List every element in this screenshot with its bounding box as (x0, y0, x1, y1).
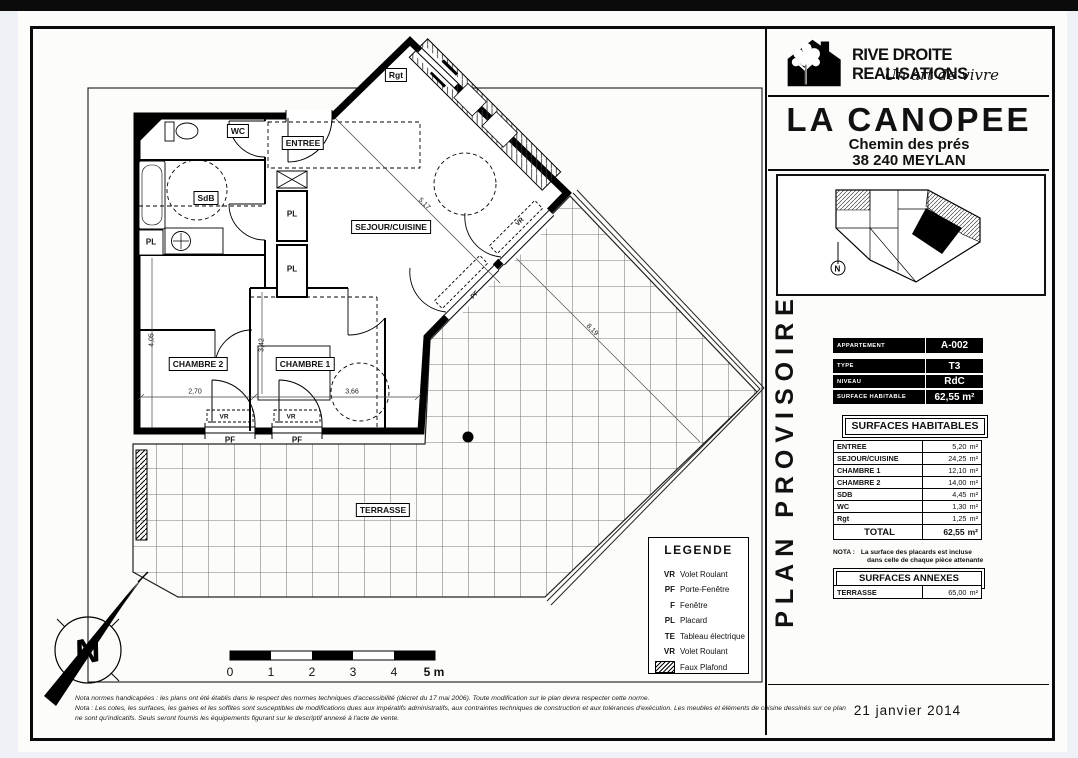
surface-total-row: TOTAL 62,55m² (833, 524, 982, 540)
surface-row: TERRASSE 65,00m² (833, 585, 982, 599)
divider-line (768, 95, 1049, 97)
room-label-wc: WC (227, 124, 249, 138)
legend-code: VR (649, 570, 675, 579)
surface-unit: m² (969, 588, 978, 597)
legend-code: PL (649, 616, 675, 625)
scale-tick-label: 1 (268, 665, 275, 679)
legend-label: Volet Roulant (680, 570, 728, 579)
room-label-entree: ENTREE (282, 136, 324, 150)
legend-code: F (649, 601, 675, 610)
info-value: A-002 (926, 340, 983, 351)
footnote: Nota normes handicapées : les plans ont … (75, 694, 775, 704)
legend-label: Tableau électrique (680, 632, 745, 641)
scale-tick-label: 4 (391, 665, 398, 679)
planter-strip (136, 450, 147, 540)
legend-box: LEGENDE VR Volet Roulant PF Porte-Fenêtr… (648, 537, 749, 674)
info-label: NIVEAU (833, 375, 926, 388)
dim-label: 2,70 (188, 389, 202, 396)
legend-item: VR Volet Roulant (649, 567, 748, 582)
surface-unit: m² (969, 454, 978, 463)
scale-tick-label: 0 (227, 665, 234, 679)
nota-label: NOTA : (833, 549, 855, 556)
hatch-swatch (655, 661, 675, 673)
room-label-rgt: Rgt (385, 68, 407, 82)
scale-tick-label: 5 m (424, 665, 445, 679)
closet-label: PL (287, 210, 297, 219)
info-label: SURFACE HABITABLE (833, 390, 926, 404)
legend-code: PF (649, 585, 675, 594)
legend-label: Fenêtre (680, 601, 708, 610)
surface-label: CHAMBRE 2 (834, 478, 922, 487)
surface-value: 4,45 (952, 490, 966, 499)
closet-label: PL (146, 238, 156, 247)
surface-value: 12,10 (948, 466, 966, 475)
surface-label: Rgt (834, 514, 922, 523)
surfaces-habitables-header: SURFACES HABITABLES (845, 418, 985, 435)
surface-total-value: 62,55 (943, 527, 964, 537)
scale-bar (230, 651, 435, 660)
surface-unit: m² (969, 514, 978, 523)
closet-label: PL (287, 265, 297, 274)
legend-item: PL Placard (649, 613, 748, 628)
project-name: LA CANOPEE (770, 101, 1048, 139)
info-value: T3 (926, 361, 983, 372)
surface-label: SEJOUR/CUISINE (834, 454, 922, 463)
scanned-floor-plan-page: N WC ENTREE SdB Rgt SEJOUR/CUISINE CHAMB… (0, 0, 1078, 758)
key-plan-box: N (776, 174, 1046, 296)
surface-value: 5,20 (952, 442, 966, 451)
company-tagline: Un art de vivre (884, 66, 1024, 84)
provisional-plan-stamp: PLAN PROVISOIRE (771, 290, 807, 630)
footnote: ne sont qu'indicatifs. Seuls seront four… (75, 714, 775, 724)
surface-label: ENTREE (834, 442, 922, 451)
surface-total-label: TOTAL (834, 527, 922, 538)
key-plan-drawing: N (778, 176, 1040, 290)
surfaces-annexes-header: SURFACES ANNEXES (836, 571, 982, 586)
room-label-sdb: SdB (194, 191, 219, 205)
column-dot (463, 432, 474, 443)
legend-label: Volet Roulant (680, 647, 728, 656)
room-label-sejour: SEJOUR/CUISINE (351, 220, 431, 234)
surface-unit: m² (969, 490, 978, 499)
nota-text: dans celle de chaque pièce attenante (833, 557, 993, 565)
room-label-terrasse: TERRASSE (356, 503, 410, 517)
legend-code: TE (649, 632, 675, 641)
dim-label: 3,42 (259, 338, 266, 352)
legend-label: Porte-Fenêtre (680, 585, 729, 594)
legend-item: F Fenêtre (649, 598, 748, 613)
surface-value: 1,25 (952, 514, 966, 523)
info-row: SURFACE HABITABLE 62,55 m² (833, 390, 983, 404)
company-logo (786, 37, 844, 89)
surface-unit: m² (969, 466, 978, 475)
date-divider (768, 684, 1049, 685)
info-value: 62,55 m² (926, 392, 983, 403)
legend-title: LEGENDE (649, 543, 748, 557)
surface-label: TERRASSE (834, 588, 922, 597)
window-label-pf: PF (292, 436, 302, 445)
info-row: NIVEAU RdC (833, 375, 983, 388)
legend-item-faux-plafond: Faux Plafond (649, 660, 748, 675)
nota-text: La surface des placards est incluse (857, 549, 972, 556)
surfaces-nota: NOTA : La surface des placards est inclu… (833, 549, 993, 565)
info-row: APPARTEMENT A-002 (833, 338, 983, 353)
dim-label: 3,66 (345, 389, 359, 396)
title-block-divider (765, 29, 767, 735)
surface-unit: m² (969, 442, 978, 451)
dim-label: 4,05 (149, 333, 156, 347)
room-label-chambre1: CHAMBRE 1 (276, 357, 335, 371)
wc-fixtures (165, 122, 198, 141)
surface-value: 65,00 (948, 588, 966, 597)
surface-value: 14,00 (948, 478, 966, 487)
surface-value: 24,25 (948, 454, 966, 463)
info-row: TYPE T3 (833, 359, 983, 373)
window-label-vr: VR (219, 414, 228, 421)
surface-unit: m² (968, 527, 978, 537)
footnote: Nota : Les cotes, les surfaces, les gain… (75, 704, 775, 714)
surfaces-annexes-table: TERRASSE 65,00m² (833, 586, 982, 599)
surface-unit: m² (969, 502, 978, 511)
legend-code: VR (649, 647, 675, 656)
scale-tick-label: 2 (309, 665, 316, 679)
surface-unit: m² (969, 478, 978, 487)
apartment-info-table: APPARTEMENT A-002 TYPE T3 NIVEAU RdC SUR… (833, 338, 983, 404)
info-label: APPARTEMENT (833, 338, 926, 353)
legend-item: VR Volet Roulant (649, 644, 748, 659)
project-address-2: 38 240 MEYLAN (770, 152, 1048, 169)
info-value: RdC (926, 376, 983, 387)
window-label-pf: PF (225, 436, 235, 445)
legend-label: Faux Plafond (680, 663, 727, 672)
info-label: TYPE (833, 359, 926, 373)
surface-label: SDB (834, 490, 922, 499)
surface-label: CHAMBRE 1 (834, 466, 922, 475)
legend-label: Placard (680, 616, 707, 625)
surface-value: 1,30 (952, 502, 966, 511)
legend-item: TE Tableau électrique (649, 629, 748, 644)
scale-tick-label: 3 (350, 665, 357, 679)
room-label-chambre2: CHAMBRE 2 (169, 357, 228, 371)
keyplan-north-letter: N (835, 265, 841, 274)
surfaces-habitables-table: ENTREE 5,20m² SEJOUR/CUISINE 24,25m² CHA… (833, 441, 982, 540)
legend-item: PF Porte-Fenêtre (649, 582, 748, 597)
divider-line (768, 169, 1049, 171)
surface-label: WC (834, 502, 922, 511)
project-address-1: Chemin des prés (770, 136, 1048, 153)
window-label-vr: VR (286, 414, 295, 421)
